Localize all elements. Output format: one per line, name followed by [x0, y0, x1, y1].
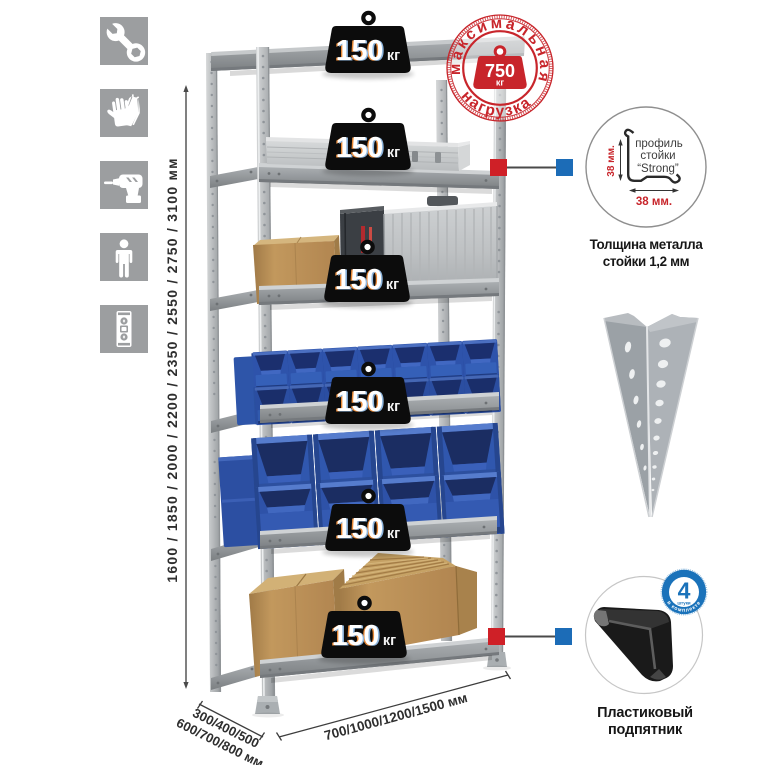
svg-text:стойки: стойки [640, 150, 675, 162]
svg-text:Толщина металла: Толщина металла [590, 237, 704, 252]
svg-text:профиль: профиль [635, 138, 683, 150]
svg-text:штуки: штуки [677, 601, 691, 606]
svg-text:стойки 1,2 мм: стойки 1,2 мм [603, 254, 690, 269]
svg-text:1600 / 1850 / 2000 / 2200 / 23: 1600 / 1850 / 2000 / 2200 / 2350 / 2550 … [164, 157, 180, 582]
svg-text:Пластиковый: Пластиковый [597, 705, 693, 721]
svg-text:кг: кг [496, 78, 505, 88]
svg-text:38 мм.: 38 мм. [636, 196, 672, 208]
svg-text:“Strong”: “Strong” [637, 163, 679, 175]
svg-text:38 мм.: 38 мм. [606, 145, 617, 177]
svg-text:подпятник: подпятник [608, 722, 683, 738]
